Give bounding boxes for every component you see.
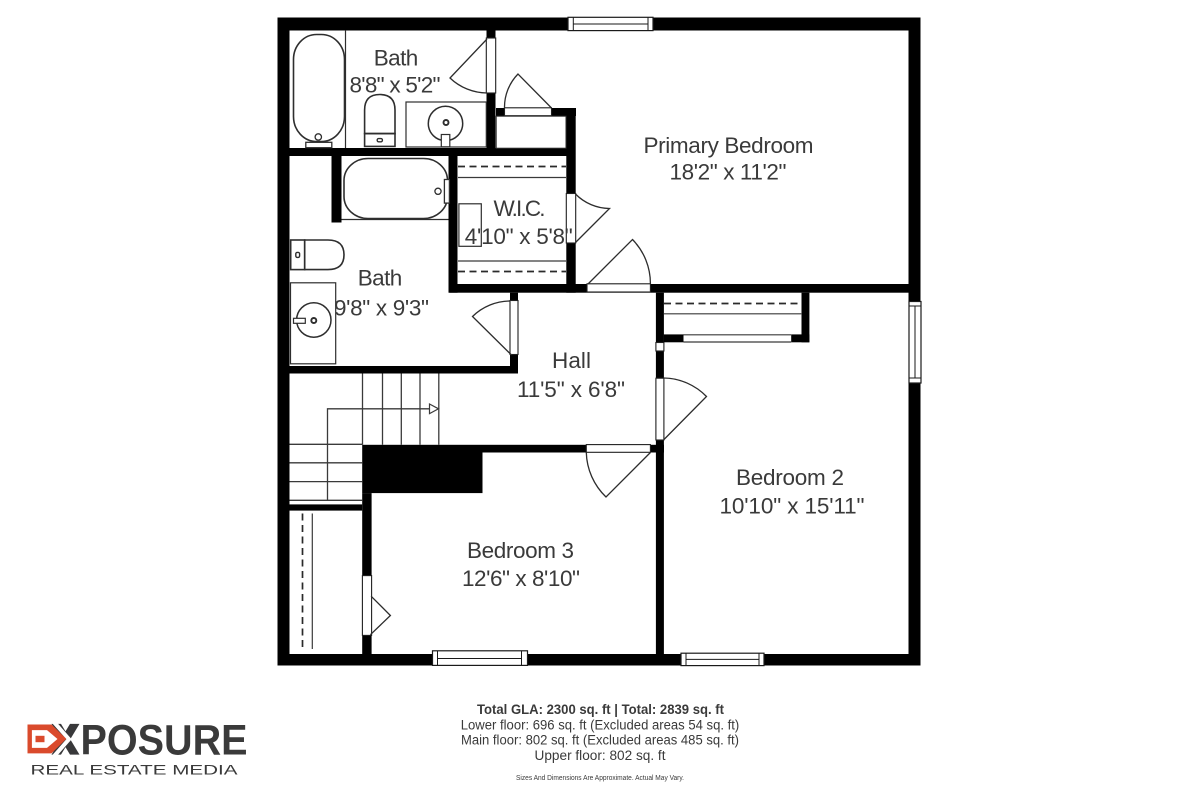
svg-text:W.I.C.: W.I.C. — [494, 196, 546, 221]
svg-text:4'10" x 5'8": 4'10" x 5'8" — [465, 224, 573, 249]
svg-text:Total GLA: 2300 sq. ft | Total: Total GLA: 2300 sq. ft | Total: 2839 sq.… — [477, 702, 724, 717]
svg-text:9'8" x 9'3": 9'8" x 9'3" — [334, 296, 429, 321]
svg-text:REAL ESTATE MEDIA: REAL ESTATE MEDIA — [31, 763, 239, 778]
svg-text:Bedroom 3: Bedroom 3 — [467, 538, 574, 563]
svg-text:Bath: Bath — [374, 46, 419, 71]
svg-text:Bedroom 2: Bedroom 2 — [736, 465, 844, 490]
svg-text:10'10" x 15'11": 10'10" x 15'11" — [720, 494, 865, 519]
svg-text:18'2" x 11'2": 18'2" x 11'2" — [670, 160, 787, 185]
svg-text:12'6" x 8'10": 12'6" x 8'10" — [462, 566, 580, 591]
svg-text:Lower floor: 696 sq. ft (Exclu: Lower floor: 696 sq. ft (Excluded areas … — [461, 717, 740, 732]
svg-text:Upper floor: 802 sq. ft: Upper floor: 802 sq. ft — [535, 748, 666, 763]
svg-text:POSURE: POSURE — [81, 718, 248, 765]
svg-text:Bath: Bath — [358, 266, 403, 291]
svg-text:11'5" x 6'8": 11'5" x 6'8" — [517, 377, 625, 402]
svg-text:Hall: Hall — [552, 348, 591, 373]
svg-text:Main floor: 802 sq. ft (Exclud: Main floor: 802 sq. ft (Excluded areas 4… — [461, 733, 739, 748]
svg-text:Primary Bedroom: Primary Bedroom — [644, 133, 814, 158]
svg-text:Sizes And Dimensions Are Appro: Sizes And Dimensions Are Approximate. Ac… — [516, 775, 684, 782]
svg-text:8'8" x 5'2": 8'8" x 5'2" — [350, 73, 441, 98]
